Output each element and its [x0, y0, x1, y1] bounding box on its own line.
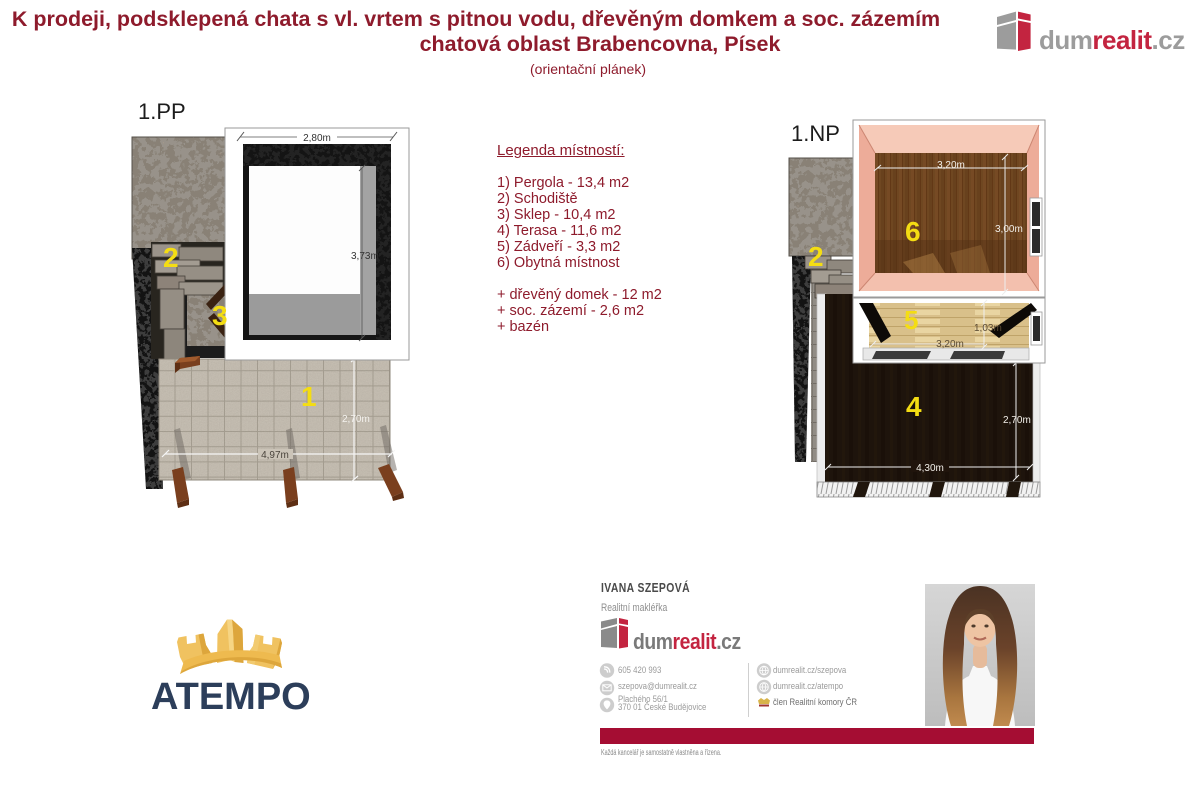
svg-text:2,70m: 2,70m	[1003, 415, 1031, 426]
svg-text:2,80m: 2,80m	[303, 133, 331, 144]
svg-text:4,30m: 4,30m	[916, 463, 944, 474]
svg-text:4,97m: 4,97m	[261, 450, 289, 461]
svg-text:1: 1	[301, 381, 317, 412]
svg-text:6: 6	[905, 216, 921, 247]
svg-text:3,20m: 3,20m	[937, 160, 965, 171]
svg-text:3,73m: 3,73m	[351, 251, 379, 262]
svg-text:2,70m: 2,70m	[342, 414, 370, 425]
svg-text:3,20m: 3,20m	[936, 339, 964, 350]
svg-text:1,03m: 1,03m	[974, 323, 1002, 334]
svg-text:2: 2	[808, 241, 824, 272]
svg-text:3: 3	[212, 300, 228, 331]
svg-text:2: 2	[163, 242, 179, 273]
svg-text:5: 5	[904, 305, 918, 335]
svg-text:4: 4	[906, 391, 922, 422]
svg-text:dumrealit.cz: dumrealit.cz	[1039, 25, 1185, 55]
svg-text:3,00m: 3,00m	[995, 224, 1023, 235]
